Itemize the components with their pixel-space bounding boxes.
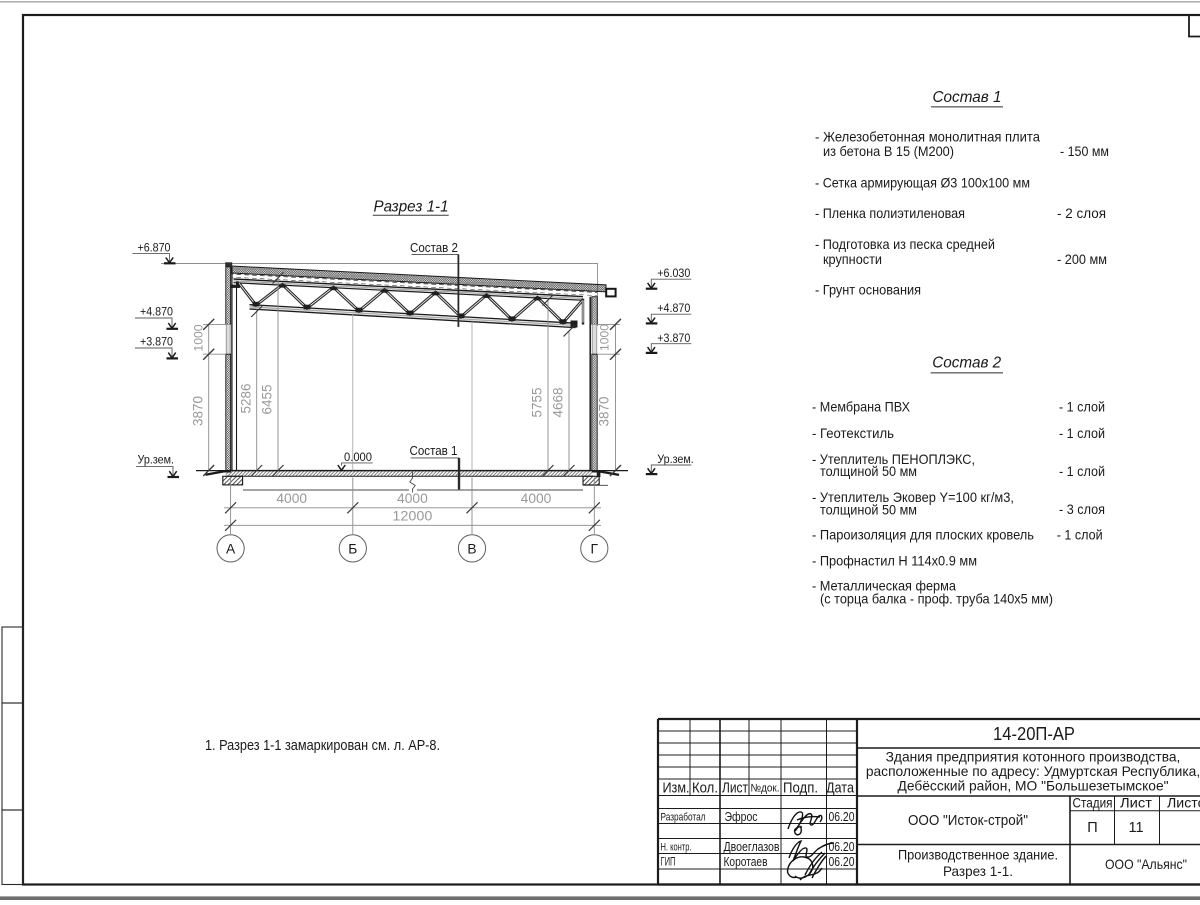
svg-text:Кол.: Кол. bbox=[692, 780, 718, 796]
svg-text:0.000: 0.000 bbox=[344, 450, 372, 464]
svg-text:Г: Г bbox=[591, 542, 599, 557]
svg-text:ООО "Альянс": ООО "Альянс" bbox=[1105, 856, 1187, 872]
svg-text:- 200 мм: - 200 мм bbox=[1057, 252, 1107, 267]
svg-text:4668: 4668 bbox=[551, 387, 566, 417]
svg-text:5286: 5286 bbox=[239, 383, 254, 413]
svg-text:+4.870: +4.870 bbox=[657, 301, 690, 315]
svg-text:- 3 слоя: - 3 слоя bbox=[1059, 502, 1105, 517]
svg-text:П: П bbox=[1087, 820, 1097, 836]
svg-text:- Сетка армирующая Ø3 100х100: - Сетка армирующая Ø3 100х100 мм bbox=[815, 175, 1030, 190]
svg-text:+3.870: +3.870 bbox=[140, 334, 173, 348]
svg-text:Н. контр.: Н. контр. bbox=[661, 842, 692, 854]
svg-text:4000: 4000 bbox=[397, 491, 428, 506]
svg-text:06.20: 06.20 bbox=[829, 839, 855, 854]
svg-text:14-20П-АР: 14-20П-АР bbox=[993, 723, 1075, 744]
svg-text:Состав 1: Состав 1 bbox=[933, 89, 1002, 106]
svg-text:- Геотекстиль: - Геотекстиль bbox=[812, 426, 894, 441]
svg-text:Производственное здание.: Производственное здание. bbox=[898, 847, 1058, 863]
svg-text:1000: 1000 bbox=[598, 324, 612, 351]
svg-text:Стадия: Стадия bbox=[1073, 795, 1113, 811]
svg-text:- Профнастил Н 114х0.9 мм: - Профнастил Н 114х0.9 мм bbox=[812, 554, 977, 569]
svg-text:толщиной 50 мм: толщиной 50 мм bbox=[820, 503, 917, 518]
svg-text:+6.870: +6.870 bbox=[138, 240, 171, 254]
svg-text:ООО "Исток-строй": ООО "Исток-строй" bbox=[908, 813, 1028, 829]
svg-text:из бетона В 15 (М200): из бетона В 15 (М200) bbox=[823, 144, 954, 159]
svg-text:Двоеглазов: Двоеглазов bbox=[724, 839, 780, 854]
svg-text:+6.030: +6.030 bbox=[657, 266, 690, 280]
svg-text:12000: 12000 bbox=[392, 509, 432, 524]
svg-text:Коротаев: Коротаев bbox=[724, 854, 768, 869]
svg-text:В: В bbox=[467, 542, 476, 557]
svg-text:Разрез 1-1: Разрез 1-1 bbox=[374, 199, 449, 216]
svg-text:ГИП: ГИП bbox=[661, 857, 676, 869]
svg-text:Дебёсский район, МО "Большезет: Дебёсский район, МО "Большезетымское" bbox=[897, 778, 1168, 793]
svg-text:06.20: 06.20 bbox=[829, 854, 855, 869]
svg-text:- Пароизоляция для плоских кро: - Пароизоляция для плоских кровель bbox=[812, 528, 1034, 543]
svg-text:- 1 слой: - 1 слой bbox=[1059, 464, 1105, 479]
svg-text:(с торца балка - проф. труба 1: (с торца балка - проф. труба 140х5 мм) bbox=[820, 591, 1053, 606]
svg-text:Ур.зем.: Ур.зем. bbox=[138, 452, 175, 466]
svg-text:3870: 3870 bbox=[597, 396, 612, 426]
svg-text:4000: 4000 bbox=[276, 491, 307, 506]
svg-text:5755: 5755 bbox=[530, 387, 545, 417]
svg-text:- 2 слоя: - 2 слоя bbox=[1057, 206, 1106, 221]
svg-text:Эфрос: Эфрос bbox=[725, 809, 758, 824]
svg-text:Лист: Лист bbox=[722, 780, 748, 796]
svg-text:- Грунт основания: - Грунт основания bbox=[815, 283, 921, 298]
svg-text:6455: 6455 bbox=[260, 384, 275, 414]
svg-text:Подп.: Подп. bbox=[783, 780, 818, 796]
svg-text:Состав 2: Состав 2 bbox=[932, 355, 1001, 372]
svg-text:- Железобетонная монолитная п: - Железобетонная монолитная плита bbox=[815, 130, 1040, 145]
svg-text:расположенные по адресу: Удмур: расположенные по адресу: Удмуртская Респ… bbox=[866, 764, 1200, 779]
svg-text:Состав 1: Состав 1 bbox=[410, 444, 458, 458]
svg-text:4000: 4000 bbox=[521, 491, 552, 506]
svg-text:Разработал: Разработал bbox=[661, 812, 706, 824]
svg-text:Лист: Лист bbox=[1120, 795, 1153, 811]
svg-text:- Пленка полиэтиленовая: - Пленка полиэтиленовая bbox=[815, 206, 965, 221]
svg-text:толщиной 50 мм: толщиной 50 мм bbox=[820, 464, 917, 479]
svg-text:- 1 слой: - 1 слой bbox=[1059, 399, 1105, 414]
svg-text:- 150 мм: - 150 мм bbox=[1060, 144, 1109, 159]
svg-text:Здания предприятия котонного п: Здания предприятия котонного производств… bbox=[886, 749, 1181, 764]
svg-text:1000: 1000 bbox=[192, 324, 206, 351]
svg-text:1. Разрез 1-1 замаркирован см.: 1. Разрез 1-1 замаркирован см. л. АР-8. bbox=[205, 738, 440, 754]
svg-text:11: 11 bbox=[1128, 820, 1143, 836]
svg-text:+3.870: +3.870 bbox=[657, 331, 690, 345]
svg-text:- 1 слой: - 1 слой bbox=[1059, 426, 1105, 441]
svg-text:крупности: крупности bbox=[823, 252, 882, 267]
svg-text:А: А bbox=[226, 542, 236, 557]
svg-text:Дата: Дата bbox=[826, 780, 855, 796]
svg-text:Состав 2: Состав 2 bbox=[410, 241, 458, 255]
svg-text:Б: Б bbox=[348, 542, 357, 557]
svg-text:№док.: №док. bbox=[751, 783, 780, 795]
svg-text:3870: 3870 bbox=[191, 396, 206, 426]
svg-text:Листов: Листов bbox=[1167, 795, 1200, 811]
svg-text:- 1 слой: - 1 слой bbox=[1057, 528, 1103, 543]
svg-text:Изм.: Изм. bbox=[663, 780, 690, 796]
svg-text:- Мембрана ПВХ: - Мембрана ПВХ bbox=[812, 399, 910, 414]
svg-text:Разрез 1-1.: Разрез 1-1. bbox=[943, 863, 1013, 879]
svg-text:Ур.зем.: Ур.зем. bbox=[657, 452, 694, 466]
svg-text:+4.870: +4.870 bbox=[140, 304, 173, 318]
svg-text:- Подготовка из песка средней: - Подготовка из песка средней bbox=[815, 237, 995, 252]
svg-text:06.20: 06.20 bbox=[829, 809, 855, 824]
